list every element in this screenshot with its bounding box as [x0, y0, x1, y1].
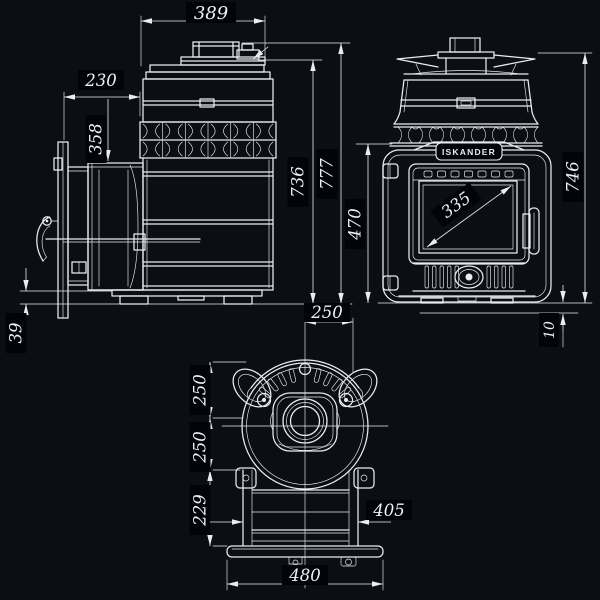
dim-chain-left: 250 250 229 [190, 362, 247, 546]
dim-offset-250: 250 [304, 303, 353, 372]
top-view: 250 250 250 229 [190, 303, 413, 590]
door-top-vents [424, 171, 513, 177]
ash-vent-band [413, 263, 525, 291]
dim-250-top-label: 250 [310, 303, 343, 322]
water-tank [143, 79, 273, 122]
pedestal-side [112, 290, 262, 304]
dim-746-label: 746 [564, 161, 583, 193]
dim-389-label: 389 [194, 3, 228, 24]
dim-base-39: 39 [6, 268, 27, 353]
dim-470-label: 470 [346, 208, 365, 241]
arch-band-side [140, 122, 276, 158]
dim-736-label: 736 [289, 166, 308, 198]
front-view: ISKANDER [345, 38, 593, 347]
brand-plate: ISKANDER [436, 143, 502, 160]
dim-250b-label: 250 [191, 431, 210, 464]
tank-lid [146, 65, 270, 79]
tank-front [394, 71, 538, 125]
side-view: 389 230 358 736 [6, 2, 353, 353]
dim-405-label: 405 [372, 501, 405, 520]
stove-technical-drawing: 389 230 358 736 [0, 0, 600, 600]
dim-358-label: 358 [87, 123, 106, 155]
dim-door-470: 470 [345, 144, 393, 303]
tunnel-door [68, 167, 88, 285]
firebox-body-side [88, 158, 273, 290]
dim-39-label: 39 [7, 323, 26, 344]
door-hinges [383, 164, 398, 290]
dim-gap-10: 10 [539, 285, 563, 347]
dim-tunnel-405: 405 [210, 500, 412, 522]
dim-firebox-358: 358 [86, 99, 109, 163]
mounting-flange [54, 142, 68, 318]
dim-229-label: 229 [191, 494, 210, 527]
chimney-front [397, 38, 535, 75]
shaker-rod [46, 234, 200, 250]
dim-body-736: 736 [258, 60, 322, 304]
dim-250a-label: 250 [191, 374, 210, 407]
door-handle [523, 208, 539, 254]
vent-knob [455, 266, 483, 288]
dim-glass-335: 335 [427, 182, 511, 247]
dim-480-label: 480 [288, 566, 321, 585]
dim-230-label: 230 [84, 71, 117, 90]
dim-10-label: 10 [542, 321, 558, 339]
dim-777-label: 777 [318, 158, 337, 190]
drawing-canvas: 389 230 358 736 [0, 0, 600, 600]
brand-label: ISKANDER [442, 147, 496, 157]
